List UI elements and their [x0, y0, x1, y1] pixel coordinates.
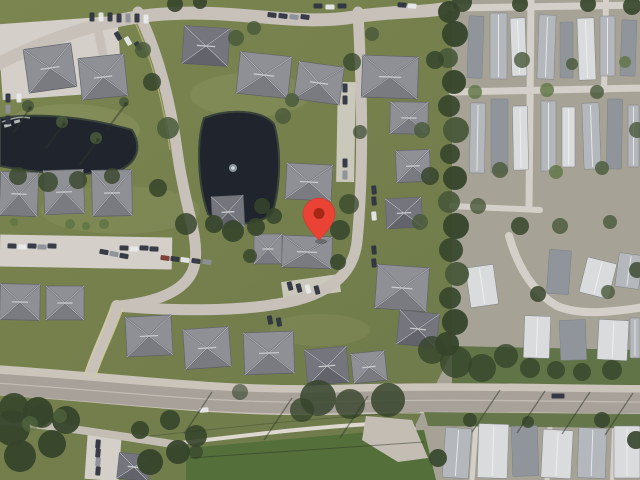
tree-canopy [619, 56, 631, 68]
tree-canopy [595, 161, 609, 175]
trailer-home [606, 99, 622, 169]
tree-canopy [438, 191, 460, 213]
tree-canopy [137, 449, 163, 475]
parked-car [149, 246, 158, 251]
parked-car [343, 171, 348, 180]
tree-canopy [514, 52, 530, 68]
trailer-home [442, 427, 471, 479]
tree-canopy [104, 168, 120, 184]
building-roof [285, 163, 333, 201]
trailer-home [490, 13, 507, 79]
parked-car [326, 5, 335, 10]
road [612, 430, 614, 480]
tree-canopy [470, 198, 486, 214]
parked-car [343, 96, 348, 105]
tree-canopy [412, 214, 428, 230]
tree-canopy [53, 409, 67, 423]
building-roof [236, 51, 292, 98]
trailer-home [582, 103, 601, 170]
parked-car [6, 94, 11, 103]
trailer-home [491, 99, 508, 173]
trailer-home [512, 106, 528, 170]
tree-canopy [157, 117, 179, 139]
tree-canopy [440, 144, 460, 164]
parked-car [407, 3, 416, 9]
building-roof [254, 234, 282, 264]
trailer-home [559, 320, 586, 361]
parked-car [371, 211, 377, 220]
parking-lot [0, 235, 172, 270]
map-viewport[interactable] [0, 0, 640, 480]
tree-canopy [442, 309, 468, 335]
tree-canopy [602, 360, 622, 380]
tree-canopy [143, 73, 161, 91]
tree-canopy [232, 384, 248, 400]
tree-canopy [594, 412, 610, 428]
tree-canopy [175, 213, 197, 235]
trailer-home [630, 318, 640, 358]
tree-canopy [131, 421, 149, 439]
building-roof [0, 284, 40, 321]
parked-car [99, 13, 104, 22]
tree-canopy [290, 398, 314, 422]
parked-car [139, 245, 148, 250]
trailer-home [511, 426, 539, 477]
tree-canopy [421, 167, 439, 185]
parking-lot [85, 435, 122, 480]
tree-canopy [573, 363, 591, 381]
tree-canopy [468, 354, 496, 382]
tree-canopy [275, 108, 291, 124]
tree-canopy [442, 21, 468, 47]
trailer-home [523, 316, 550, 359]
trailer-home [620, 20, 637, 76]
palm-shadow-head [124, 102, 128, 106]
parked-car [6, 105, 11, 114]
building-roof [305, 346, 350, 386]
tree-canopy [547, 361, 565, 379]
tree-canopy [429, 449, 447, 467]
parked-car [343, 159, 348, 168]
parked-car [129, 246, 138, 251]
tree-canopy [247, 218, 265, 236]
trailer-home [562, 107, 575, 167]
trailer-home [597, 319, 629, 361]
tree-canopy [443, 213, 469, 239]
tree-canopy [4, 440, 36, 472]
tree-canopy [10, 218, 18, 226]
trailer-home [546, 249, 571, 294]
building-roof [243, 331, 294, 375]
parked-car [117, 14, 122, 23]
parked-car [95, 439, 101, 448]
tree-canopy [443, 117, 469, 143]
parked-car [144, 15, 149, 24]
parked-car [95, 457, 101, 466]
tree-canopy [440, 346, 472, 378]
satellite-imagery [0, 0, 640, 480]
building-roof [294, 61, 345, 105]
tree-canopy [205, 215, 223, 233]
tree-canopy [492, 162, 508, 178]
tree-canopy [371, 383, 405, 417]
tree-canopy [38, 430, 66, 458]
tree-canopy [511, 217, 529, 235]
road [452, 5, 640, 8]
parked-car [343, 84, 348, 93]
parked-car [17, 94, 22, 103]
road [529, 0, 531, 206]
trailer-home [541, 101, 556, 171]
building-roof [182, 25, 231, 66]
tree-canopy [439, 238, 463, 262]
tree-canopy [566, 58, 578, 70]
parked-car [552, 394, 565, 399]
parked-car [7, 243, 16, 248]
tree-canopy [443, 166, 467, 190]
parked-car [338, 4, 347, 9]
tree-canopy [285, 93, 299, 107]
tree-canopy [243, 249, 257, 263]
building-roof [23, 43, 77, 93]
tree-canopy [330, 220, 350, 240]
tree-canopy [160, 410, 180, 430]
tree-canopy [353, 125, 367, 139]
tree-canopy [549, 165, 563, 179]
building-roof [183, 326, 232, 369]
tree-canopy [65, 219, 75, 229]
parked-car [6, 116, 11, 125]
parked-car [95, 466, 101, 475]
tree-canopy [38, 172, 58, 192]
tree-canopy [330, 254, 346, 270]
tree-canopy [590, 85, 604, 99]
tree-canopy [439, 287, 461, 309]
building-roof [46, 286, 84, 320]
location-pin-dot [314, 208, 325, 219]
tree-canopy [463, 413, 477, 427]
parked-car [371, 245, 377, 254]
tree-canopy [552, 218, 568, 234]
palm-shadow-head [62, 122, 66, 126]
tree-canopy [228, 30, 244, 46]
tree-canopy [9, 167, 27, 185]
parked-car [371, 258, 377, 267]
parked-car [37, 244, 46, 249]
tree-canopy [530, 286, 546, 302]
tree-canopy [445, 262, 469, 286]
palm-shadow-head [96, 138, 100, 142]
tree-canopy [135, 42, 151, 58]
parked-car [95, 448, 101, 457]
parked-car [17, 244, 26, 249]
tree-canopy [468, 85, 482, 99]
trailer-home [467, 16, 484, 78]
tree-canopy [414, 122, 430, 138]
trailer-home [577, 428, 607, 479]
tree-canopy [494, 344, 518, 368]
parked-car [397, 2, 406, 8]
parked-car [90, 13, 95, 22]
trailer-home [465, 264, 498, 308]
building-roof [78, 54, 128, 101]
tree-canopy [149, 179, 167, 197]
trailer-home [541, 429, 573, 479]
parked-car [371, 185, 377, 194]
parked-car [126, 14, 131, 23]
building-roof [351, 350, 388, 383]
tree-canopy [335, 389, 365, 419]
trailer-home [537, 15, 556, 80]
tree-canopy [22, 416, 38, 432]
pond-fountain-center [231, 166, 235, 170]
tree-canopy [365, 27, 379, 41]
trailer-home [469, 103, 485, 173]
parked-car [108, 13, 113, 22]
tree-canopy [343, 53, 361, 71]
tree-canopy [99, 219, 109, 229]
tree-canopy [247, 21, 261, 35]
building-roof [125, 315, 173, 357]
tree-canopy [254, 198, 270, 214]
tree-canopy [339, 194, 359, 214]
tree-canopy [601, 285, 615, 299]
parked-car [135, 14, 140, 23]
tree-canopy [82, 222, 90, 230]
parked-car [314, 4, 323, 9]
palm-shadow-head [28, 106, 32, 110]
parked-car [371, 196, 377, 205]
trailer-home [577, 18, 596, 81]
parked-car [47, 243, 56, 248]
tree-canopy [603, 215, 617, 229]
tree-canopy [166, 440, 190, 464]
parked-car [27, 243, 36, 248]
tree-canopy [520, 358, 540, 378]
building-roof [375, 264, 430, 312]
building-roof [361, 55, 418, 99]
tree-canopy [540, 83, 554, 97]
tree-canopy [222, 220, 244, 242]
parked-car [119, 245, 128, 250]
trailer-home [477, 423, 509, 478]
tree-canopy [426, 51, 444, 69]
trailer-home [600, 16, 615, 76]
road [452, 206, 540, 210]
tree-canopy [442, 70, 466, 94]
tree-canopy [438, 95, 460, 117]
tree-canopy [69, 171, 87, 189]
